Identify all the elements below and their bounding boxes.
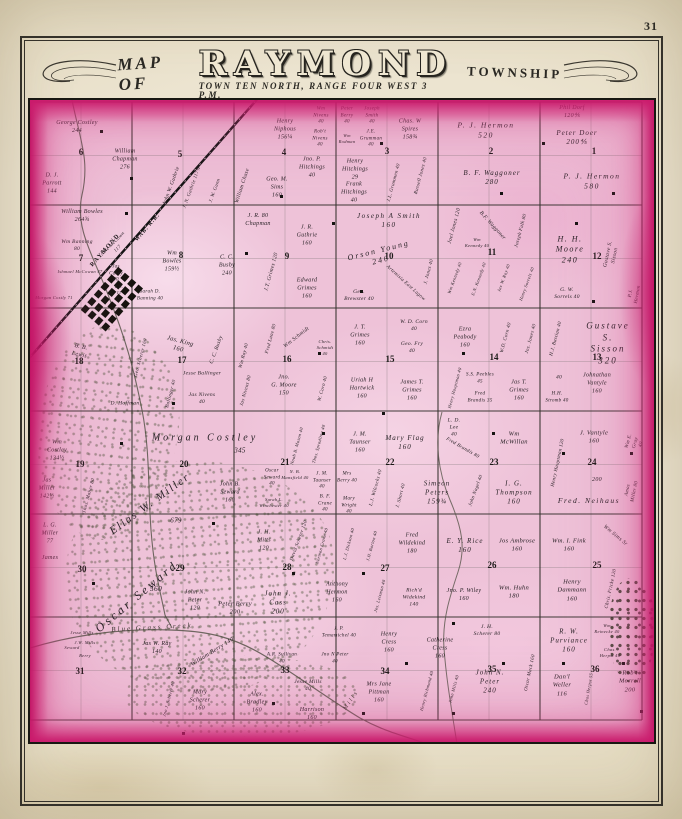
building-marker: [362, 712, 365, 715]
parcel-label: Henry Cress 160: [381, 631, 398, 654]
parcel-label: Morgan Costley: [152, 432, 258, 445]
parcel-label: Chas Herpst 55: [583, 673, 594, 706]
section-number: 6: [79, 147, 84, 159]
parcel-label: Peter Berry 200: [218, 601, 252, 618]
parcel-label: Frank Hitchings 40: [341, 181, 367, 204]
building-marker: [592, 300, 595, 303]
parcel-label: 200: [592, 477, 602, 485]
parcel-label: Noah B. Mason 40: [289, 427, 305, 466]
building-marker: [502, 662, 505, 665]
parcel-label: Johnathan Vantyle 160: [583, 372, 611, 395]
parcel-label: Geo. Brewster 40: [344, 289, 374, 303]
building-marker: [280, 195, 283, 198]
parcel-label: Henry Sorrels 40: [518, 266, 536, 301]
parcel-label: Jas W. Ray 40: [496, 263, 511, 292]
title-center-group: RAYMOND TOWN TEN NORTH, RANGE FOUR WEST …: [199, 47, 453, 100]
parcel-label: Fred Brandis 35: [467, 392, 492, 405]
parcel-label: Wm. Huhn 180: [499, 585, 529, 602]
parcel-label: Gustave S. Sisson: [601, 233, 624, 277]
page-number: 31: [644, 19, 658, 34]
parcel-label: D. J. Parrott 144: [42, 172, 62, 195]
parcel-label: Fred. Neihaus: [558, 496, 620, 506]
parcel-label: Wm E. Gray 40: [624, 432, 647, 454]
parcel-label: Ezra Peabody 160: [453, 326, 476, 349]
parcel-label: Wm Schmidt: [283, 326, 312, 351]
parcel-label: Geo. Scherer 160: [134, 338, 151, 378]
parcel-label: Joel Jones 120: [447, 207, 463, 244]
section-number: 25: [593, 560, 602, 572]
section-number: 26: [488, 560, 497, 572]
parcel-label: Geo. M. Sims 160: [266, 176, 288, 199]
parcel-label: 40: [556, 374, 562, 381]
parcel-label: Wm Rodman: [339, 133, 356, 145]
parcel-label: John W. Guthrie: [162, 166, 183, 207]
parcel-label: Peter Berry 40: [341, 106, 354, 126]
parcel-label: Jas Nivens 40: [189, 392, 216, 406]
parcel-label: Fred Wildekind 180: [399, 532, 426, 555]
building-marker: [92, 582, 95, 585]
map-canvas: 6543217891011121817161514131920212223243…: [28, 98, 656, 744]
parcel-label: Fred Lane 80: [265, 323, 279, 354]
parcel-label: B. F. Waggoner 280: [463, 169, 520, 187]
parcel-label: Mills: [342, 690, 361, 713]
parcel-label: Rob't Morrell 200: [619, 669, 641, 694]
parcel-label: J. Short 40: [396, 483, 409, 509]
parcel-label: J. W. Gunn: [209, 178, 224, 204]
parcel-label: Wm Kennedy 40: [447, 261, 464, 294]
parcel-label: Phil Dorf 120⅘: [559, 105, 585, 121]
parcel-label: Jos. Jones 40: [525, 323, 539, 354]
parcel-label: James T. Grimes 160: [400, 379, 423, 402]
parcel-label: Sarah D. Banning 40: [137, 290, 163, 303]
section-number: 14: [490, 352, 499, 364]
parcel-label: Thos. Spradling 40: [311, 424, 327, 464]
parcel-label: John N. Peter 240: [476, 668, 505, 695]
parcel-label: P. J. Hermon 580: [563, 171, 620, 191]
parcel-label: L.J. Dickson 40: [342, 527, 356, 560]
parcel-label: R. W. Purviance 160: [550, 627, 588, 654]
parcel-label: George Costley 244: [56, 120, 97, 136]
title-left-group: MAP OF: [40, 53, 185, 93]
parcel-label: Wm Bowles 159½: [162, 250, 181, 273]
parcel-label: Jos. Leisman 40: [373, 579, 387, 613]
parcel-label: Rich'd Widekind 140: [403, 587, 426, 608]
section-number: 31: [76, 666, 85, 678]
section-number: 30: [78, 564, 87, 576]
section-number: 19: [76, 459, 85, 471]
parcel-label: J. R. Guthrie 160: [297, 224, 318, 247]
parcel-label: P. J. Hermon 520: [457, 120, 514, 140]
parcel-label: N. B. Mansfield 40: [281, 469, 308, 481]
parcel-label: Mary Flag 160: [385, 434, 424, 452]
parcel-label: WAB. R.R.: [134, 212, 162, 243]
section-number: 15: [386, 354, 395, 366]
building-marker: [360, 290, 363, 293]
parcel-label: Jas T. Grimes 160: [509, 379, 528, 402]
parcel-label: J. Vantyle 160: [580, 430, 608, 447]
parcel-label: B. B. Lewis: [71, 343, 89, 361]
building-marker: [452, 622, 455, 625]
parcel-label: Simeon Peters 159¾: [424, 479, 451, 506]
parcel-label: Mrs Jane Pittman 160: [367, 681, 392, 704]
section-number: 21: [281, 457, 290, 469]
building-marker: [640, 710, 643, 713]
parcel-label: Jno. P. Wiley 160: [447, 588, 482, 604]
parcel-label: Elias W. Miller: [107, 470, 193, 538]
parcel-label: John Mills 40: [447, 674, 460, 703]
parcel-label: W. D. Corn 40: [400, 319, 428, 333]
parcel-label: J. R. 80 Chapman: [245, 213, 270, 229]
parcel-label: Jas Miller 142½: [39, 477, 56, 500]
section-number: 33: [281, 665, 290, 677]
parcel-label: L. G. Miller 77: [42, 522, 59, 545]
parcel-label: Henry Hauptman 40: [447, 367, 464, 409]
building-marker: [462, 352, 465, 355]
parcel-label: Harrison 160: [300, 707, 324, 723]
parcel-label: Wm Costley 134½: [47, 439, 67, 462]
building-marker: [542, 142, 545, 145]
parcel-label: J.T. Grimes 120: [263, 252, 280, 292]
parcel-label: James: [42, 555, 59, 563]
building-marker: [130, 177, 133, 180]
parcel-label: Anthony Hermon 160: [326, 581, 348, 604]
parcel-label: Jesse Mills 40: [294, 679, 322, 693]
section-number: 4: [282, 147, 287, 159]
title-suffix: TOWNSHIP: [466, 63, 562, 82]
building-marker: [245, 252, 248, 255]
parcel-label: John B. Seward 160: [220, 481, 240, 504]
parcel-label: B. F. Crane 40: [318, 494, 332, 514]
parcel-label: J. Jones 40: [424, 259, 437, 285]
parcel-label: J.E. Grumman 40: [360, 129, 382, 149]
building-marker: [212, 522, 215, 525]
township-name: RAYMOND: [199, 47, 453, 81]
parcel-label: I. G. Thompson 160: [495, 479, 532, 506]
parcel-label: G. W. Sorrels 40: [554, 287, 580, 301]
parcel-label: William Bowles 264¾: [61, 209, 103, 225]
parcel-label: Jno. P. Hitchings 40: [299, 156, 325, 179]
building-marker: [452, 712, 455, 715]
parcel-label: Jas Casey 40: [109, 264, 123, 284]
parcel-label: J. H. Mitts 120: [257, 529, 271, 552]
building-marker: [562, 662, 565, 665]
section-number: 34: [381, 666, 390, 678]
parcel-label: A.R. Sullivan 40: [267, 653, 297, 666]
section-number: 5: [178, 149, 183, 161]
parcel-label: P.J. Hermon: [627, 284, 643, 305]
flourish-left-icon: [40, 55, 118, 91]
parcel-label: L.J. Wilcocks 40: [369, 469, 385, 507]
parcel-label: Amos Miller 80: [623, 479, 640, 503]
section-number: 23: [490, 457, 499, 469]
section-number: 2: [489, 146, 494, 158]
parcel-label: Jas Nivens 80: [240, 375, 254, 407]
building-marker: [292, 572, 295, 575]
parcel-label: 345: [234, 446, 245, 455]
building-marker: [332, 222, 335, 225]
building-marker: [120, 442, 123, 445]
parcel-label: Jno. G. Moore 150: [271, 374, 297, 397]
parcel-label: Ishmael McCowan 47: [58, 269, 103, 275]
parcel-label: H. H. Moore 240: [556, 234, 585, 265]
parcel-label: Chris. Fricke 120: [605, 569, 620, 610]
parcel-label: Edward Grimes 160: [297, 277, 318, 300]
building-marker: [622, 662, 625, 665]
parcel-label: Morgan Costly 71: [35, 295, 72, 301]
building-marker: [100, 130, 103, 133]
parcel-label: David Scherer 120: [290, 520, 311, 562]
parcel-label: William Berry 140: [190, 637, 236, 670]
parcel-label: Wm Banning 80: [61, 239, 93, 253]
parcel-label: Jesse Ballinger: [183, 370, 221, 377]
parcel-label: Mary Scherer 160: [190, 689, 211, 712]
building-marker: [405, 662, 408, 665]
section-number: 16: [283, 354, 292, 366]
parcel-label: Joseph A Smith 160: [357, 212, 421, 230]
parcel-label: Henry Niphous 156¼: [274, 118, 296, 141]
parcel-label: Jno N Peter 40: [321, 653, 348, 666]
parcel-label: W. Corn 40: [318, 376, 331, 403]
parcel-label: Jas W. Ray 140: [142, 641, 171, 657]
parcel-label: William Chase: [234, 168, 252, 205]
building-marker: [575, 222, 578, 225]
building-marker: [500, 192, 503, 195]
parcel-label: Jesse Mills: [70, 630, 93, 636]
parcel-label: S.S. Peebles 45: [466, 373, 494, 386]
parcel-label: Henry Dammann 160: [557, 578, 586, 603]
parcel-label: Fred Brandis 80: [444, 437, 480, 461]
section-number: 24: [588, 457, 597, 469]
parcel-label: Mrs Berry 40: [337, 472, 357, 485]
parcel-label: Catherine Cress 160: [427, 637, 454, 660]
building-marker: [612, 192, 615, 195]
building-marker: [630, 452, 633, 455]
parcel-label: 679: [170, 516, 181, 525]
parcel-label: W.D. Corn 40: [500, 322, 514, 354]
building-marker: [382, 412, 385, 415]
parcel-label: Wm Nivens 40: [313, 106, 328, 126]
parcel-label: 560: [150, 584, 162, 594]
parcel-label: Chas. W Spires 158¾: [399, 118, 421, 141]
building-marker: [362, 572, 365, 575]
building-marker: [272, 702, 275, 705]
parcel-label: H.J. Bastian 40: [549, 321, 564, 357]
parcel-label: William Chapman 276: [112, 148, 137, 171]
building-marker: [492, 432, 495, 435]
parcel-label: Gustave S. Sisson 320: [585, 321, 631, 368]
parcel-label: Oscar Mack 160: [524, 654, 538, 692]
parcel-label: John J. Cass 200: [264, 589, 291, 616]
parcel-label: Dan'l Weller 116: [553, 673, 572, 698]
parcel-label: Wm Ray 40: [239, 343, 252, 370]
parcel-label: Henry Hitchings 29: [342, 158, 368, 181]
parcel-label: Sarah L. Winchester 40: [259, 497, 289, 509]
parcel-label: J.L. Grummen 40: [387, 163, 404, 203]
parcel-label: Jas. King 160: [164, 334, 195, 357]
parcel-label: Chas. Herpst 40: [600, 647, 621, 659]
section-number: 32: [178, 666, 187, 678]
parcel-label: J. N. Guthrie 117¾: [182, 166, 203, 209]
flourish-right-icon: [562, 55, 640, 91]
parcel-label: E. Y. Rice 160: [447, 537, 484, 555]
parcel-label: C. C. Busby: [209, 335, 226, 365]
parcel-label: Mary Wright 40: [341, 496, 356, 516]
title-prefix: MAP OF: [117, 51, 186, 96]
parcel-label: Wm McWillan: [500, 431, 528, 448]
section-number: 9: [285, 251, 290, 263]
parcel-label: Norman Crane 40: [314, 527, 329, 565]
parcel-label: J. M. Taunser 40: [313, 471, 331, 491]
map-title: MAP OF RAYMOND TOWN TEN NORTH, RANGE FOU…: [40, 48, 640, 98]
parcel-label: Russell Jones 40: [414, 157, 430, 196]
parcel-label: Artemisia East Lagow: [384, 265, 426, 304]
parcel-label: T.W. 11: [115, 284, 124, 296]
building-marker: [182, 732, 185, 735]
section-number: 22: [386, 457, 395, 469]
parcel-label: Henry Hauptman 120: [551, 438, 568, 487]
parcel-label: Wm Kennedy 40: [465, 237, 489, 249]
parcel-label: Wm. I. Fink 160: [552, 538, 586, 555]
parcel-label: D. Hoffman: [111, 400, 140, 407]
parcel-labels-layer: 6543217891011121817161514131920212223243…: [30, 100, 654, 742]
building-marker: [322, 432, 325, 435]
parcel-label: Wm Reinecke 40: [594, 623, 619, 635]
parcel-label: Uriah H Hartwick 160: [350, 377, 375, 400]
parcel-label: H.H. Stromb 40: [545, 392, 568, 405]
section-number: 12: [593, 251, 602, 263]
parcel-label: C. C. Busby 240: [219, 254, 235, 277]
parcel-label: Orson Young 240: [347, 238, 414, 274]
parcel-label: Oscar Seward 40: [264, 468, 281, 488]
parcel-label: Seward: [64, 645, 79, 651]
building-marker: [380, 142, 383, 145]
parcel-label: J.H. Barton 40: [365, 530, 379, 561]
section-number: 1: [592, 146, 597, 158]
parcel-label: J. M. Taunser 160: [349, 431, 370, 454]
parcel-label: Peter Doer 200⅘: [556, 129, 597, 147]
parcel-label: John N. Peter 120: [185, 589, 206, 612]
parcel-label: Jno J. Scherer 40: [161, 681, 176, 718]
parcel-label: J. T. Grimes 160: [350, 324, 369, 347]
parcel-label: J. H. Scherer 80: [474, 624, 501, 638]
parcel-label: E.N. Kennedy 40: [470, 262, 487, 297]
parcel-label: Alex. Bradley 160: [246, 691, 267, 714]
parcel-label: Berry: [79, 653, 91, 659]
section-number: 11: [488, 247, 497, 259]
parcel-label: Blue Grass Creek: [111, 621, 193, 634]
title-subtitle: TOWN TEN NORTH, RANGE FOUR WEST 3 P.M.: [199, 82, 453, 100]
parcel-label: J. P. Temamichel 40: [322, 627, 356, 640]
building-marker: [125, 212, 128, 215]
parcel-label: Rob't Nivens 40: [312, 129, 327, 149]
parcel-label: Wm Sims Sr: [601, 524, 628, 548]
section-number: 27: [381, 563, 390, 575]
parcel-label: Joseph Falk 80: [514, 213, 529, 248]
parcel-label: Henry Richmond 40: [419, 670, 435, 711]
section-number: 17: [178, 355, 187, 367]
section-number: 3: [385, 146, 390, 158]
parcel-label: L. D. Lee 40: [448, 417, 461, 438]
parcel-label: Thos. Maher 80: [82, 478, 98, 514]
title-right-group: TOWNSHIP: [467, 55, 640, 91]
section-number: 7: [79, 253, 84, 265]
building-marker: [172, 402, 175, 405]
parcel-label: John Nagel 40: [468, 474, 485, 507]
section-number: 28: [283, 562, 292, 574]
parcel-label: Geo. Fry 40: [401, 341, 423, 355]
building-marker: [562, 452, 565, 455]
parcel-label: Joseph Smith 40: [364, 106, 380, 126]
building-marker: [318, 352, 321, 355]
parcel-label: Jos Ambrose 160: [499, 538, 535, 555]
atlas-page: 31 MAP OF RAYMOND TOWN TEN NORTH, RANGE …: [0, 0, 682, 819]
